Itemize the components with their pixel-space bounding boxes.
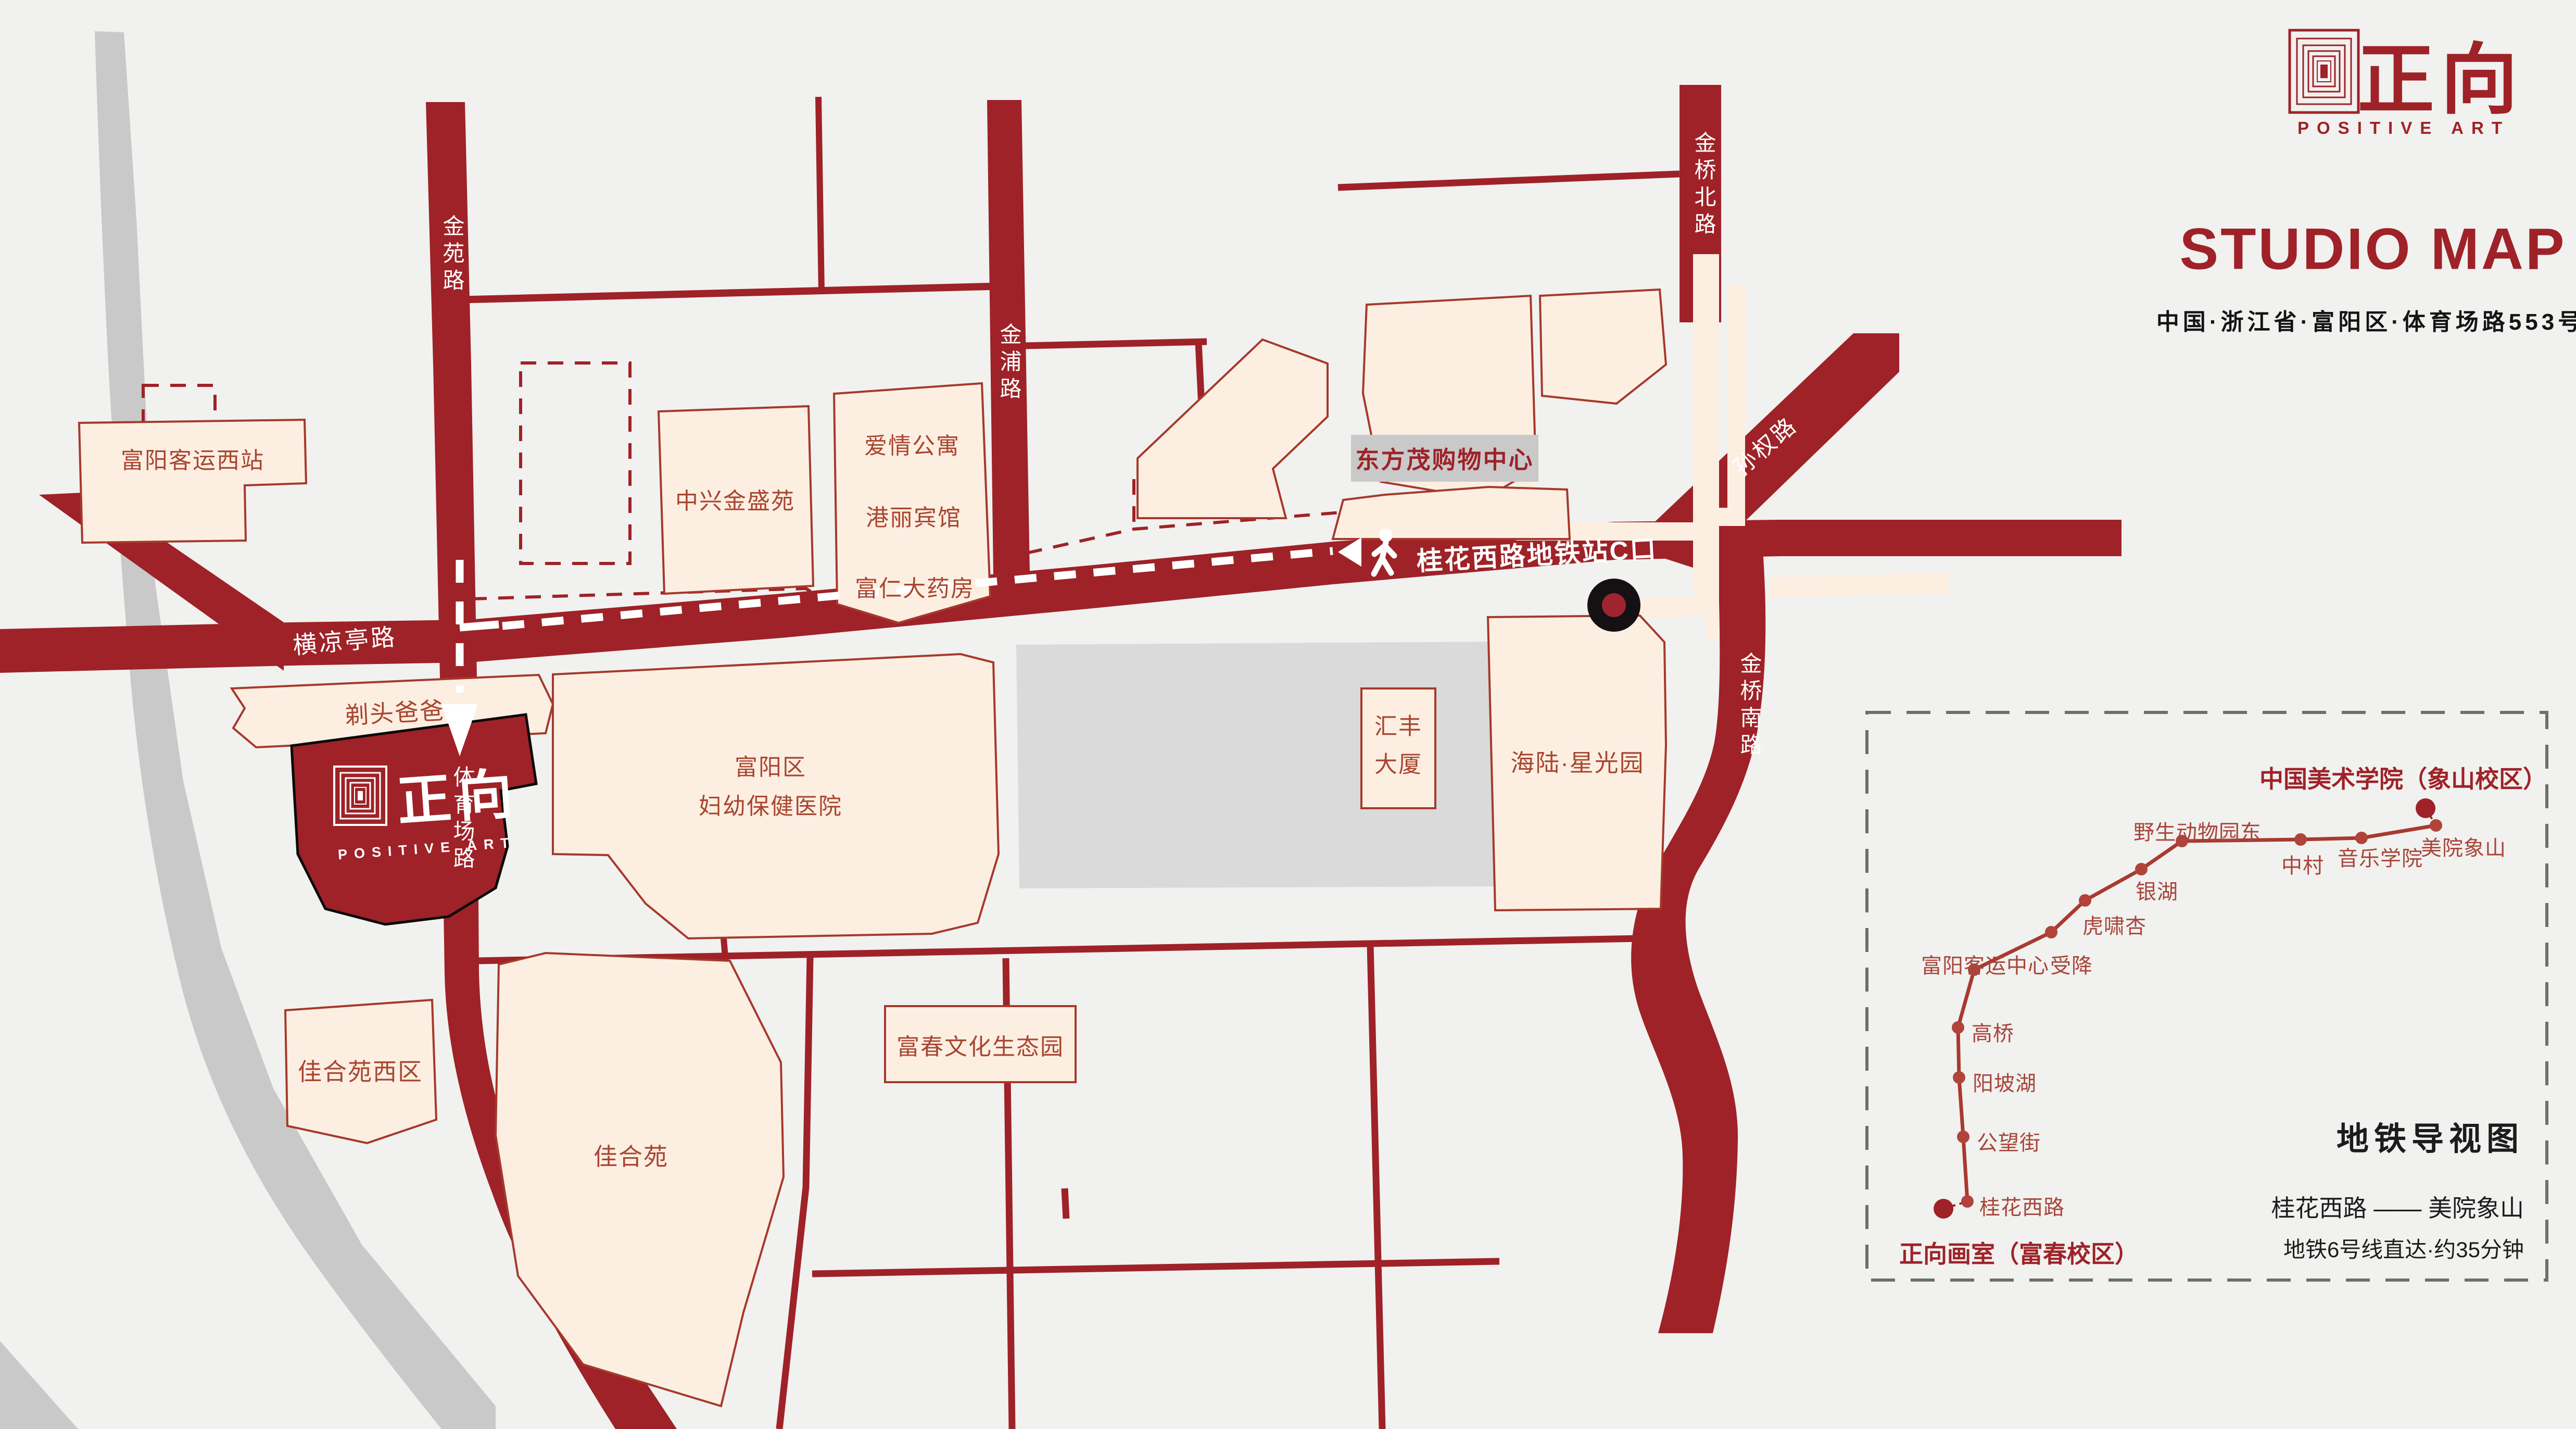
panel-title: 地铁导视图 — [2264, 1112, 2524, 1159]
label-zhongxing: 中兴金盛苑 — [675, 482, 795, 516]
label-huifeng-l2: 大厦 — [1374, 746, 1422, 784]
label-jiaheyuan: 佳合苑 — [594, 1138, 668, 1172]
road-label-jinqiao-north: 金桥北路 — [1688, 131, 1720, 240]
metro-exit-marker-core — [1602, 593, 1626, 617]
label-jiaheyuan-west: 佳合苑西区 — [298, 1053, 423, 1087]
station-yangpohu: 阳坡湖 — [1973, 1067, 2037, 1097]
station-meiyuanxiangshan: 美院象山 — [2421, 831, 2506, 861]
label-titou: 剃头爸爸 — [344, 692, 445, 731]
station-huxiaoxing: 虎啸杏 — [2082, 909, 2146, 939]
road-label-jinyuan: 金苑路 — [436, 215, 468, 296]
label-dongfangmao-text: 东方茂购物中心 — [1356, 441, 1534, 475]
station-fuyangkeyun: 富阳客运中心 — [1921, 949, 2049, 979]
station-yeshengdongwuyuan: 野生动物园东 — [2133, 816, 2262, 846]
header-address: 中国·浙江省·富阳区·体育场路553号 — [2156, 303, 2576, 336]
station-zhongcun: 中村 — [2281, 849, 2324, 879]
road-label-jinqiao-south: 金桥南路 — [1734, 652, 1765, 760]
label-hailu: 海陆·星光园 — [1510, 744, 1644, 779]
label-hospital-l2: 妇幼保健医院 — [699, 787, 842, 826]
studio-map-poster: 正向 POSITIVE ART STUDIO MAP 中国·浙江省·富阳区·体育… — [0, 0, 2576, 1429]
header-logo-icon — [2290, 30, 2358, 112]
label-huifeng: 汇丰 大厦 — [1374, 708, 1422, 783]
river-wedge — [0, 1341, 78, 1429]
bld-dfm-4 — [1540, 290, 1666, 404]
page-title: STUDIO MAP — [2179, 216, 2566, 283]
origin-dot — [1934, 1199, 1953, 1219]
road-label-jinpu: 金浦路 — [993, 323, 1025, 404]
station-gaoqiao: 高桥 — [1972, 1017, 2014, 1047]
panel-route-desc: 桂花西路 —— 美院象山 — [2212, 1189, 2524, 1224]
bld-dfm-3 — [1333, 487, 1570, 539]
header-logo-zh: 正向 — [2357, 17, 2524, 129]
label-fuyang-west-station: 富阳客运西站 — [121, 442, 264, 475]
station-yinhu: 银湖 — [2136, 875, 2178, 905]
station-guihuaxilu: 桂花西路 — [1979, 1190, 2065, 1221]
bld-dfm-1 — [1138, 340, 1328, 518]
studio-logo-zh: 正向 — [394, 749, 522, 836]
bld-fuyang-west-station — [79, 420, 306, 543]
panel-origin: 正向画室（富春校区） — [1899, 1235, 2139, 1270]
station-yinyuexueyuan: 音乐学院 — [2338, 842, 2423, 872]
label-fuchun-park: 富春文化生态园 — [896, 1028, 1064, 1061]
destination-dot — [2416, 798, 2435, 818]
label-gangli: 港丽宾馆 — [866, 499, 962, 532]
panel-destination: 中国美术学院（象山校区） — [2259, 760, 2528, 795]
panel-duration: 地铁6号线直达·约35分钟 — [2212, 1232, 2524, 1264]
bld-jiaheyuan — [496, 953, 784, 1406]
label-hospital: 富阳区 妇幼保健医院 — [699, 748, 842, 826]
header-logo-en: POSITIVE ART — [2297, 118, 2510, 138]
label-dongfangmao: 东方茂购物中心 — [1351, 435, 1538, 482]
label-aiqing: 爱情公寓 — [864, 427, 960, 460]
label-huifeng-l1: 汇丰 — [1374, 708, 1422, 746]
label-furen: 富仁大药房 — [855, 570, 975, 603]
label-hospital-l1: 富阳区 — [699, 748, 842, 787]
station-shoujiang: 受降 — [2050, 949, 2093, 979]
station-gongwangjie: 公望街 — [1977, 1126, 2041, 1156]
